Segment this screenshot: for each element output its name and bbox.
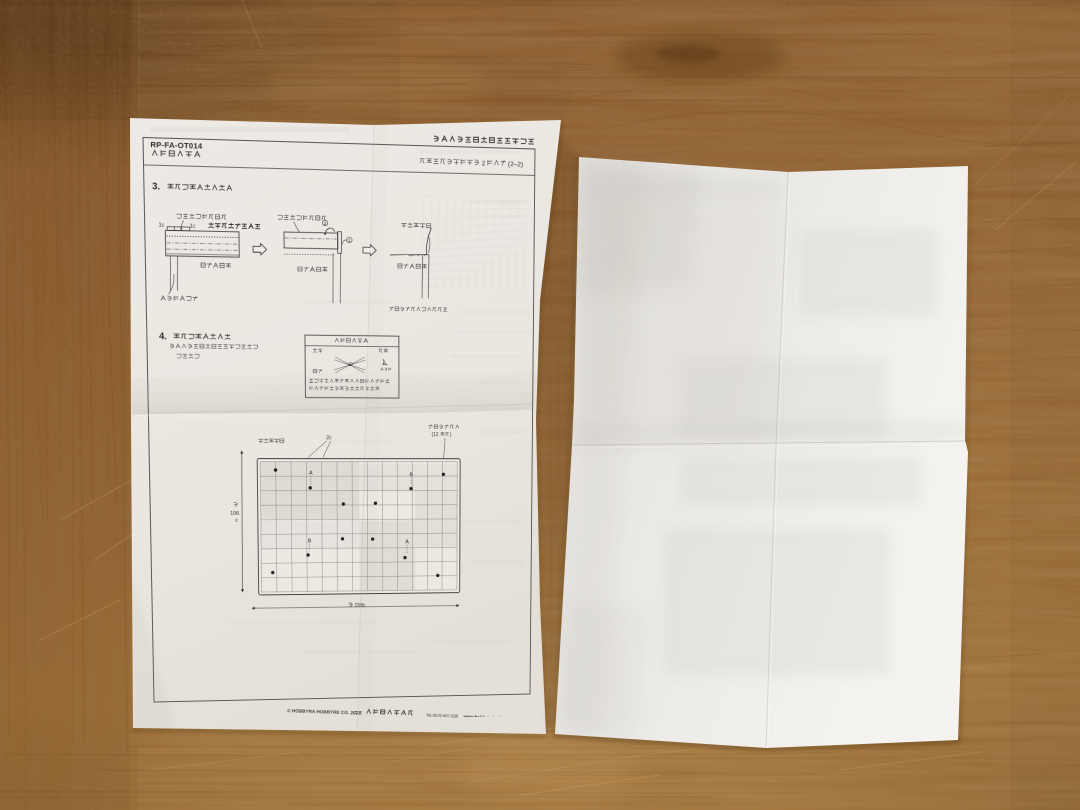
svg-text:B: B	[410, 473, 414, 479]
svg-text:RP-FA-OT014: RP-FA-OT014	[150, 140, 202, 150]
svg-text:© HOBBYRA HOBBYRE CO. 2022: © HOBBYRA HOBBYRE CO. 2022	[287, 708, 361, 717]
svg-text:2: 2	[482, 159, 486, 168]
svg-text:2: 2	[324, 221, 327, 227]
svg-text:): )	[450, 432, 452, 438]
svg-text:2c: 2c	[326, 435, 332, 441]
svg-text:B: B	[308, 539, 312, 545]
svg-text:106: 106	[230, 511, 239, 517]
svg-text:158c: 158c	[354, 603, 366, 609]
svg-text:1: 1	[348, 238, 351, 244]
svg-text:(2–2): (2–2)	[508, 159, 523, 168]
svg-text:4.: 4.	[159, 331, 167, 342]
svg-text:A: A	[405, 540, 409, 546]
svg-text:1c: 1c	[190, 224, 196, 230]
svg-text:A: A	[309, 471, 313, 477]
svg-text:(12: (12	[432, 432, 439, 438]
svg-text:3.: 3.	[152, 181, 160, 192]
svg-text:c: c	[235, 518, 238, 524]
svg-text:1c: 1c	[159, 223, 165, 229]
